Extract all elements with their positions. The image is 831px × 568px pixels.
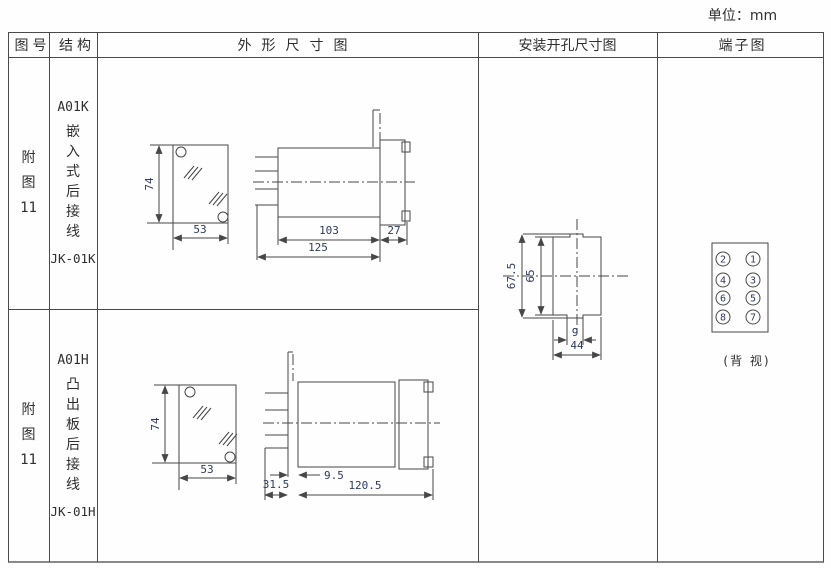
- dim-body: 120.5: [348, 479, 381, 492]
- front-view: 74 53: [149, 385, 237, 490]
- dim-flange: 27: [387, 224, 400, 237]
- col-divider-4: [657, 32, 658, 562]
- terminal-pins: [265, 393, 288, 448]
- header-terminal: 端子图: [657, 32, 826, 57]
- header-structure: 结构: [49, 32, 101, 57]
- terminal-view-caption: (背 视): [697, 352, 797, 369]
- terminal-number: 6: [720, 294, 726, 305]
- mount-hole-bottom: [218, 212, 228, 222]
- side-view: 103 27 125: [253, 110, 415, 262]
- terminal-pins: [255, 157, 278, 205]
- hatch-mark: [209, 192, 227, 206]
- dim-outer-height: 67.5: [505, 263, 518, 290]
- terminal-diagram: 2 1 4 3 6 5 8 7: [697, 237, 797, 342]
- dim-notch-width: 9: [572, 326, 579, 339]
- page: 单位：mm 图号 结构 外形尺寸图 安装开孔尺寸图 端子图 附 图 11 A01…: [0, 0, 831, 568]
- cutout-drawing: 67.5 65 9 44: [488, 193, 640, 371]
- side-view: 9.5 31.5 120.5: [263, 352, 440, 500]
- dim-panel-gap: 9.5: [324, 469, 344, 482]
- mount-hole-bottom: [225, 452, 235, 462]
- col-divider-3: [478, 32, 479, 562]
- dim-height: 74: [143, 177, 156, 191]
- terminal-number: 1: [750, 255, 756, 266]
- header-divider: [8, 57, 824, 58]
- terminal-number: 2: [720, 255, 726, 266]
- mount-hole-top: [176, 147, 186, 157]
- dim-total: 125: [308, 241, 328, 254]
- dim-inner-height: 65: [524, 269, 537, 282]
- dim-width: 44: [570, 339, 584, 352]
- front-view: 74 53: [143, 145, 228, 250]
- clip-bottom: [402, 211, 410, 221]
- col-divider-2: [97, 32, 98, 562]
- header-outline: 外形尺寸图: [97, 32, 488, 57]
- dim-height: 74: [149, 417, 162, 431]
- hatch-mark: [193, 406, 211, 420]
- row2-structure: A01H 凸 出 板 后 接 线 JK-01H: [49, 309, 97, 562]
- outline-drawing-jk01k: 74 53 103 27 125: [140, 98, 425, 270]
- terminal-number: 7: [750, 313, 756, 324]
- mount-hole-top: [185, 387, 195, 397]
- dim-width: 53: [193, 223, 206, 236]
- dim-body: 103: [319, 224, 339, 237]
- row2-figure-no: 附 图 11: [8, 309, 49, 562]
- unit-label: 单位：mm: [660, 5, 825, 25]
- row1-figure-no: 附 图 11: [8, 57, 49, 309]
- terminal-number: 8: [720, 313, 726, 324]
- terminal-circles: 2 1 4 3 6 5 8 7: [716, 252, 760, 324]
- header-cutout: 安装开孔尺寸图: [478, 32, 657, 57]
- dim-pins: 31.5: [263, 478, 290, 491]
- header-figure-no: 图号: [8, 32, 53, 57]
- row1-structure: A01K 嵌 入 式 后 接 线 JK-01K: [49, 57, 97, 309]
- terminal-number: 3: [750, 276, 756, 287]
- clip-top: [402, 142, 410, 152]
- hatch-mark: [219, 432, 237, 446]
- hatch-mark: [184, 166, 202, 180]
- rear-flange: [399, 380, 428, 469]
- terminal-number: 4: [720, 276, 726, 287]
- dim-width: 53: [200, 463, 213, 476]
- outline-drawing-jk01h: 74 53 9.5 31.5 120.5: [140, 338, 460, 518]
- relay-body: [298, 382, 395, 467]
- terminal-number: 5: [750, 294, 756, 305]
